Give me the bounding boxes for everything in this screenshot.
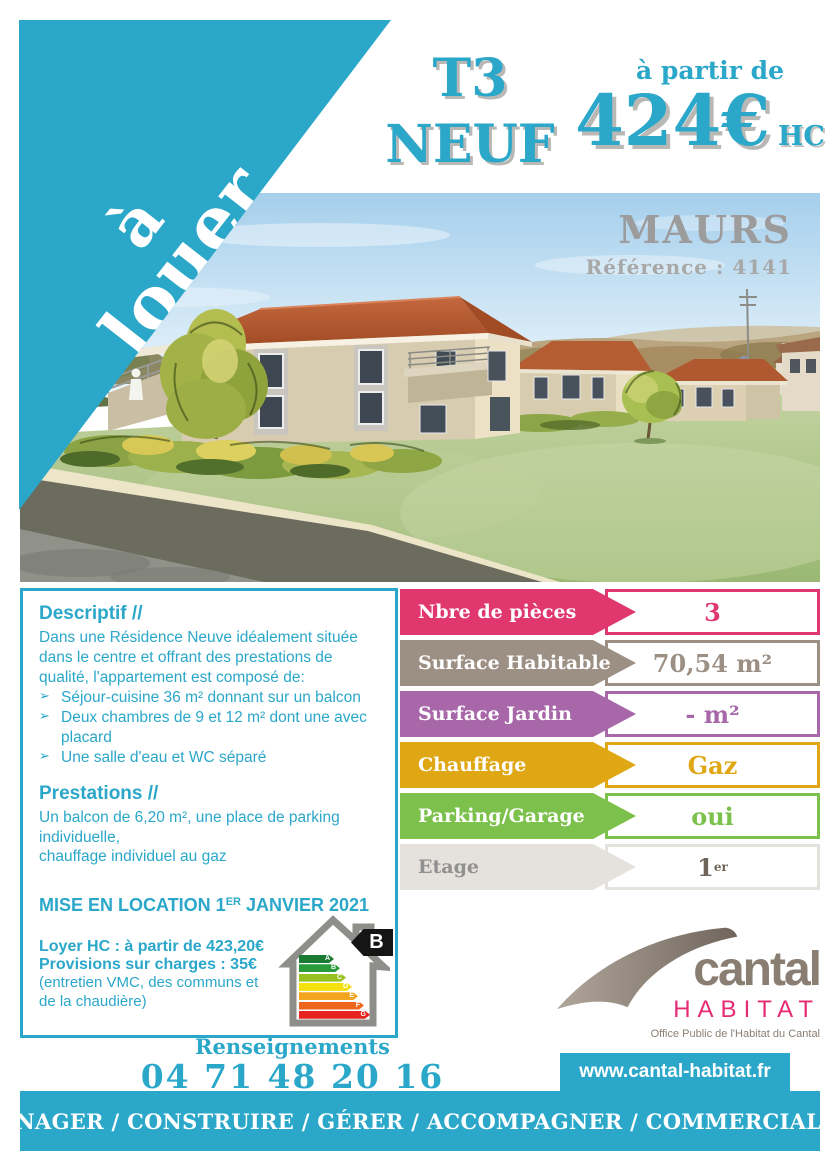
attribute-row: ouiParking/Garage (400, 793, 820, 839)
unit-type-title: T3 (380, 48, 560, 109)
energy-bar-D: D (299, 983, 352, 991)
attribute-label: Surface Habitable (400, 640, 636, 686)
unit-state-title: NEUF (355, 114, 585, 175)
price-amount: 424€ (575, 82, 770, 159)
footer-banner: AMÉNAGER / CONSTRUIRE / GÉRER / ACCOMPAG… (20, 1091, 820, 1151)
bullet-arrow-icon: ➢ (39, 708, 61, 748)
bullet-text: Deux chambres de 9 et 12 m² dont une ave… (61, 708, 380, 748)
energy-bar-B: B (299, 964, 340, 972)
attribute-label: Parking/Garage (400, 793, 636, 839)
bullet-text: Séjour-cuisine 36 m² donnant sur un balc… (61, 688, 361, 708)
contact-block: Renseignements 04 71 48 20 16 (20, 1034, 565, 1093)
attribute-value: - m² (605, 691, 820, 737)
contact-phone[interactable]: 04 71 48 20 16 (20, 1060, 565, 1093)
attribute-row: 1erEtage (400, 844, 820, 890)
cantal-habitat-logo: cantal HABITAT Office Public de l'Habita… (555, 924, 820, 1050)
description-box: Descriptif // Dans une Résidence Neuve i… (20, 588, 398, 1038)
energy-bar-G: G (299, 1011, 370, 1019)
energy-bar-A: A (299, 955, 334, 963)
energy-bar-F: F (299, 1002, 364, 1010)
reference-label: Référence : 4141 (586, 255, 792, 279)
attribute-value: oui (605, 793, 820, 839)
attribute-label: Surface Jardin (400, 691, 636, 737)
attribute-value: 70,54 m² (605, 640, 820, 686)
energy-rating-icon: ABCDEFG B (272, 908, 390, 1030)
logo-word-cantal: cantal (693, 946, 820, 994)
attributes-list: 3Nbre de pièces70,54 m²Surface Habitable… (400, 589, 820, 895)
attribute-value: 3 (605, 589, 820, 635)
attribute-label: Chauffage (400, 742, 636, 788)
website-link[interactable]: www.cantal-habitat.fr (560, 1053, 790, 1091)
descriptif-intro: Dans une Résidence Neuve idéalement situ… (39, 628, 380, 687)
charges-note: (entretien VMC, des communs et de la cha… (39, 974, 274, 1012)
energy-bar-C: C (299, 974, 346, 982)
attribute-row: GazChauffage (400, 742, 820, 788)
prestations-title: Prestations // (39, 783, 380, 805)
bullet-item: ➢Séjour-cuisine 36 m² donnant sur un bal… (39, 688, 380, 708)
attribute-row: 3Nbre de pièces (400, 589, 820, 635)
flyer-page: T3 NEUF à partir de 424€ HC (0, 0, 840, 1170)
price-row: 424€ HC (572, 82, 828, 159)
bullet-item: ➢Une salle d'eau et WC séparé (39, 748, 380, 768)
attribute-value: Gaz (605, 742, 820, 788)
bullet-text: Une salle d'eau et WC séparé (61, 748, 266, 768)
city-title: MAURS (618, 207, 792, 252)
attribute-row: - m²Surface Jardin (400, 691, 820, 737)
prestations-text: Un balcon de 6,20 m², une place de parki… (39, 808, 380, 867)
attribute-row: 70,54 m²Surface Habitable (400, 640, 820, 686)
contact-label: Renseignements (20, 1034, 565, 1059)
energy-bar-E: E (299, 992, 358, 1000)
bullet-arrow-icon: ➢ (39, 688, 61, 708)
attribute-value: 1er (605, 844, 820, 890)
attribute-label: Nbre de pièces (400, 589, 636, 635)
bullet-item: ➢Deux chambres de 9 et 12 m² dont une av… (39, 708, 380, 748)
descriptif-title: Descriptif // (39, 603, 380, 625)
descriptif-bullets: ➢Séjour-cuisine 36 m² donnant sur un bal… (39, 688, 380, 767)
logo-tagline: Office Public de l'Habitat du Cantal (651, 1028, 820, 1040)
price-unit: HC (778, 121, 825, 152)
attribute-label: Etage (400, 844, 636, 890)
logo-word-habitat: HABITAT (673, 998, 820, 1022)
bullet-arrow-icon: ➢ (39, 748, 61, 768)
